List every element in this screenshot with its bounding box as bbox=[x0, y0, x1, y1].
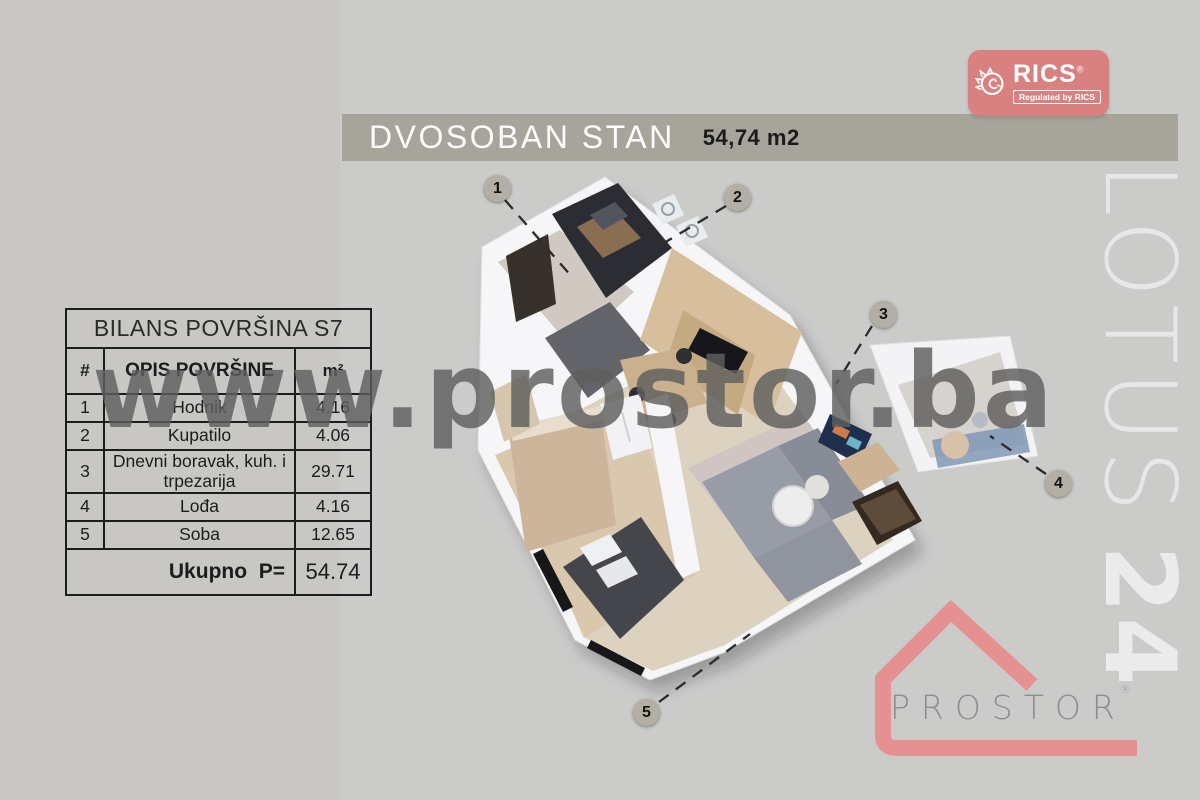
plan-marker-4: 4 bbox=[1045, 470, 1072, 497]
row-value: 4.16 bbox=[294, 494, 370, 520]
rics-lion-icon bbox=[975, 59, 1008, 107]
registered-mark: ® bbox=[1077, 65, 1085, 75]
registered-mark: ® bbox=[1120, 683, 1131, 696]
row-num: 4 bbox=[67, 494, 103, 520]
prostor-house-icon bbox=[860, 595, 1160, 770]
plan-marker-1: 1 bbox=[484, 175, 511, 202]
row-desc: Soba bbox=[103, 522, 294, 548]
apartment-type-title: DVOSOBAN STAN bbox=[369, 119, 675, 156]
prostor-logo: PROSTOR® bbox=[860, 595, 1160, 770]
rics-badge: RICS® Regulated by RICS bbox=[968, 50, 1109, 116]
plan-marker-3: 3 bbox=[870, 301, 897, 328]
table-row: 5 Soba 12.65 bbox=[67, 520, 370, 548]
rics-brand: RICS® bbox=[1013, 62, 1084, 87]
title-bar: DVOSOBAN STAN 54,74 m2 bbox=[342, 114, 1178, 161]
total-label: Ukupno P= bbox=[67, 550, 294, 594]
table-row: 3 Dnevni boravak, kuh. i trpezarija 29.7… bbox=[67, 449, 370, 492]
row-desc: Lođa bbox=[103, 494, 294, 520]
table-total-row: Ukupno P= 54.74 bbox=[67, 548, 370, 594]
row-value: 12.65 bbox=[294, 522, 370, 548]
prostor-brand: PROSTOR® bbox=[890, 688, 1137, 727]
row-desc: Dnevni boravak, kuh. i trpezarija bbox=[103, 451, 294, 492]
plan-marker-5: 5 bbox=[633, 699, 660, 726]
total-value: 54.74 bbox=[294, 550, 370, 594]
plan-marker-2: 2 bbox=[724, 184, 751, 211]
rics-tagline: Regulated by RICS bbox=[1013, 90, 1101, 104]
brochure-page: LOTUS24 bbox=[0, 0, 1200, 800]
lotus-word: LOTUS bbox=[1082, 162, 1196, 519]
row-num: 5 bbox=[67, 522, 103, 548]
watermark-text: www.prostor.ba bbox=[92, 330, 1056, 452]
table-row: 4 Lođa 4.16 bbox=[67, 492, 370, 520]
apartment-area-value: 54,74 m2 bbox=[703, 125, 800, 151]
row-value: 29.71 bbox=[294, 451, 370, 492]
row-num: 3 bbox=[67, 451, 103, 492]
